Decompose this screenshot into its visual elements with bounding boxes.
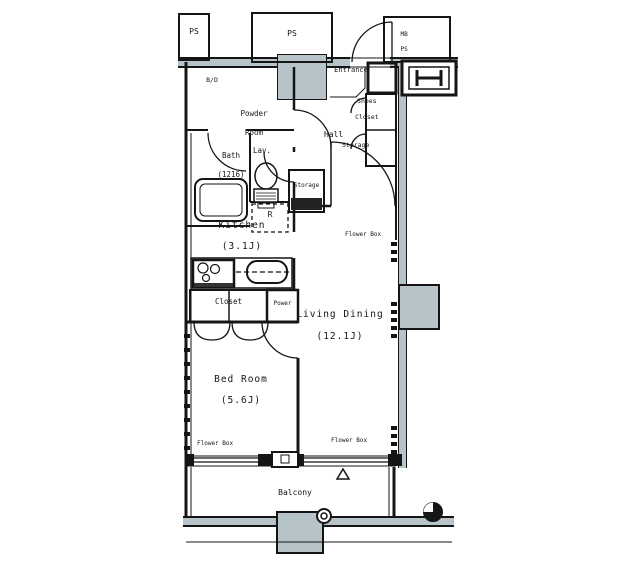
powder-room-line1: Powder [240, 109, 267, 118]
bath-label: Bath (1216) [198, 142, 246, 189]
living-window [304, 458, 388, 462]
shoes-closet-label: Shoes Closet [338, 89, 380, 130]
shoes-closet-line1: Shoes [357, 97, 377, 105]
bd-label: B/D [199, 76, 225, 84]
bed-room-label: Bed Room [196, 374, 286, 386]
ps-right-label: PS [400, 46, 407, 53]
kitchen-label: Kitchen [214, 220, 270, 232]
plan-linework [0, 0, 640, 569]
bed-room-size-label: (5.6J) [196, 395, 286, 407]
lavatory-label: Lav. [253, 146, 271, 155]
ps-left-box [179, 14, 209, 60]
refrigerator-label: R [252, 210, 288, 220]
lavatory-storage-label: Storage [289, 182, 324, 190]
kitchen-size-label: (3.1J) [214, 241, 270, 253]
hall-storage-label: Storage [342, 141, 369, 149]
power-label: Power [267, 300, 298, 308]
entrance-label: Entrance [326, 66, 376, 75]
flower-box-bottom-right-label: Flower Box [331, 437, 367, 445]
powder-door-arc [294, 110, 331, 147]
bath-size: (1216) [217, 170, 244, 179]
drain-icon [317, 509, 331, 523]
living-door-arc [331, 142, 395, 206]
compass-icon [424, 503, 443, 522]
toilet-bowl [255, 163, 277, 189]
powder-room-label: Powder Room [218, 100, 272, 147]
bedroom-window [194, 458, 258, 462]
mb-ps-label: MB PS [386, 23, 406, 61]
lavatory-storage-door [291, 198, 322, 210]
flower-box-bottom-left-label: Flower Box [197, 440, 233, 448]
living-dining-size-label: (12.1J) [288, 331, 392, 343]
living-dining-label: Living Dining [288, 309, 392, 321]
ps-left-label: PS [179, 27, 209, 37]
powder-room-line2: Room [245, 128, 263, 137]
hall-label: Hall [324, 130, 343, 140]
bath-name: Bath [222, 151, 240, 160]
partition-triangle-icon [337, 469, 349, 479]
balcony-label: Balcony [250, 488, 340, 498]
shutter-box [272, 452, 298, 467]
closet-label: Closet [190, 297, 267, 306]
closet-bifold-arcs [194, 322, 268, 340]
toilet-tank [254, 189, 278, 202]
shoes-closet-line2: Closet [355, 113, 378, 121]
flower-box-right-label: Flower Box [345, 231, 381, 239]
floor-plan: PS PS MB PS B/D Entrance Shoes Closet Po… [0, 0, 640, 569]
ps-center-label: PS [252, 29, 332, 39]
mb-label: MB [400, 31, 407, 38]
